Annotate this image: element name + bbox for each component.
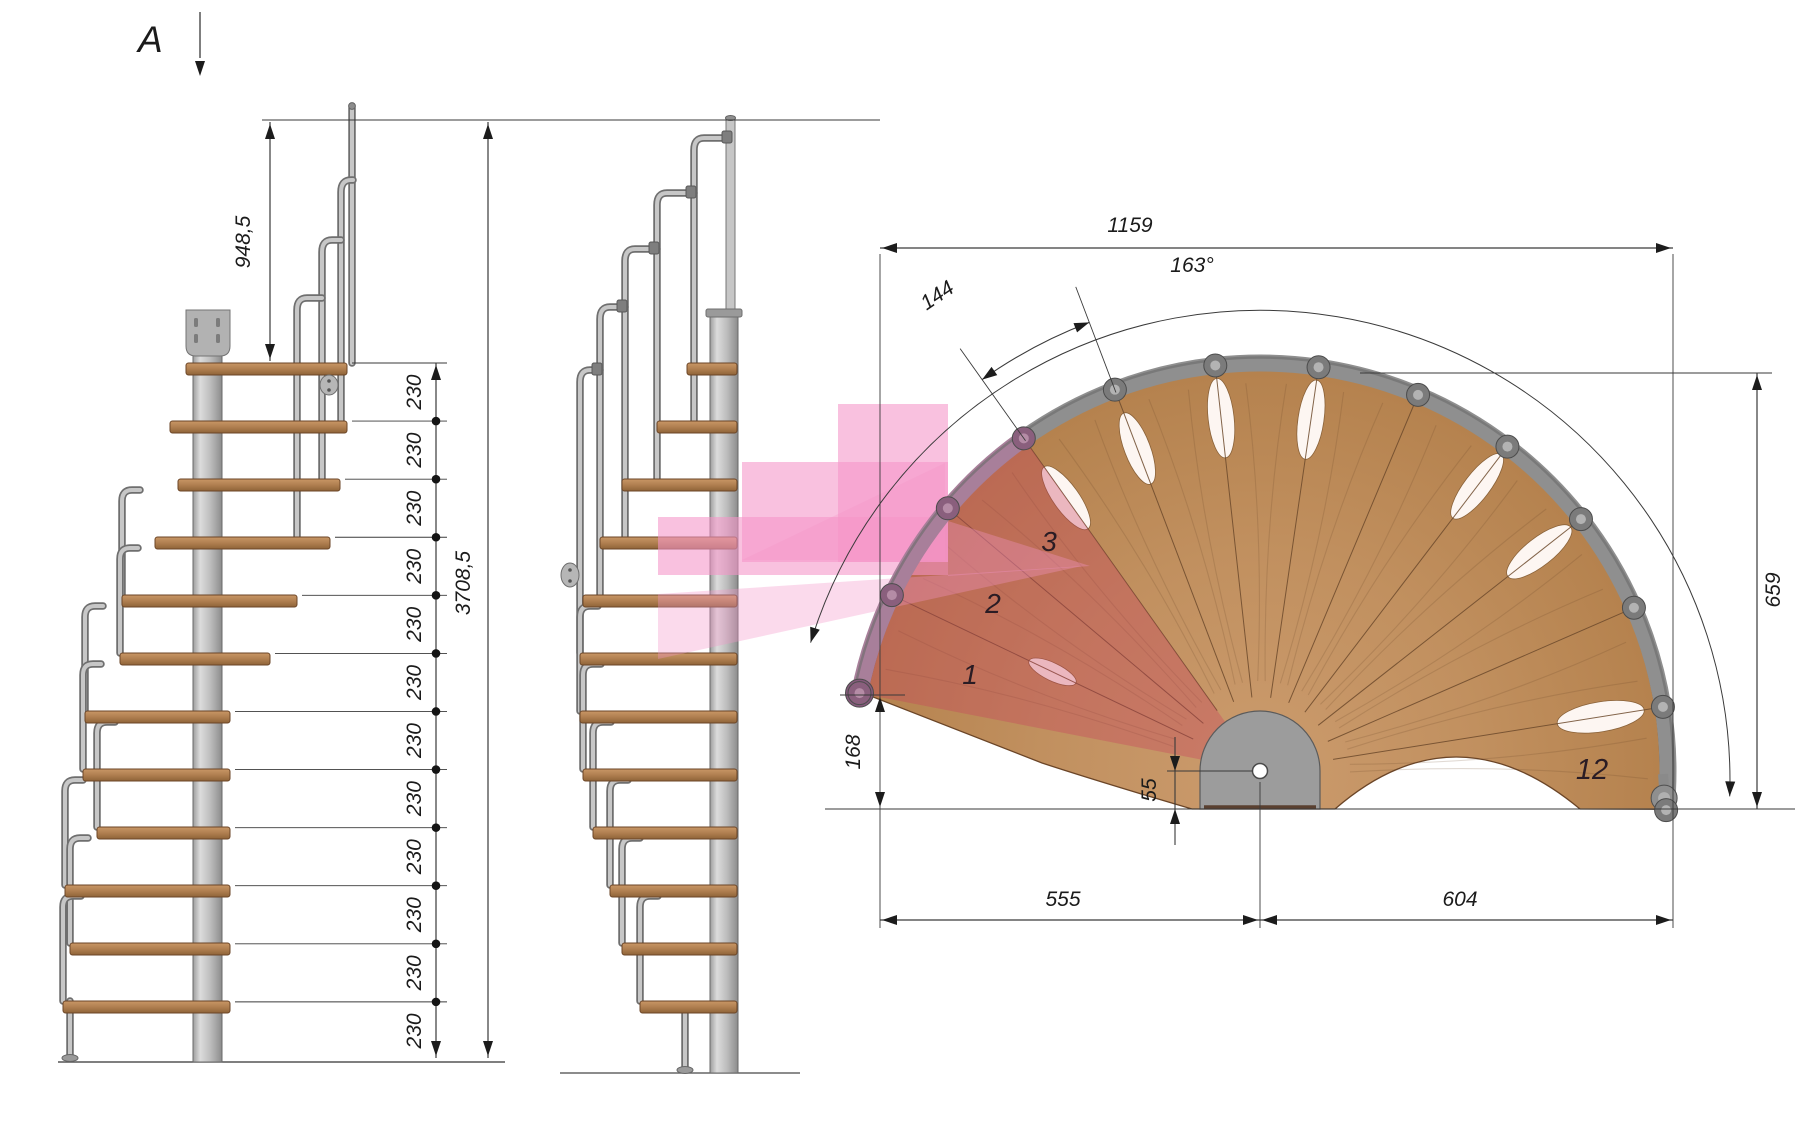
- dim-label-total-height: 3708,5: [452, 551, 475, 616]
- dim-label-left-of-center: 555: [1045, 888, 1080, 911]
- plan-step-label-3: 3: [1041, 526, 1057, 557]
- dim-label-riser-7: 230: [403, 723, 426, 759]
- dim-label-total-width: 1159: [1107, 214, 1152, 237]
- dim-label-step-arc-length: 144: [916, 276, 958, 315]
- dim-label-riser-4: 230: [403, 548, 426, 584]
- plan-view: [658, 354, 1678, 822]
- dim-label-riser-11: 230: [403, 955, 426, 991]
- plan-step-label-1: 1: [962, 659, 978, 690]
- dim-label-riser-9: 230: [403, 839, 426, 875]
- section-marker-label: A: [136, 19, 163, 60]
- dim-label-riser-6: 230: [403, 665, 426, 701]
- dim-label-riser-2: 230: [403, 432, 426, 468]
- dim-label-handrail-height: 948,5: [232, 215, 255, 268]
- dim-label-outer-height: 659: [1762, 572, 1785, 607]
- dim-label-riser-8: 230: [403, 781, 426, 817]
- technical-drawing: 230230230230230230230230230230230230 A 9…: [0, 0, 1800, 1122]
- dim-label-riser-1: 230: [403, 374, 426, 410]
- dim-label-right-of-center: 604: [1442, 888, 1477, 911]
- dim-label-total-angle: 163°: [1170, 254, 1213, 277]
- dim-label-riser-5: 230: [403, 607, 426, 643]
- dim-label-riser-10: 230: [403, 897, 426, 933]
- dim-label-center-offset: 55: [1138, 778, 1161, 802]
- dim-label-riser-3: 230: [403, 490, 426, 526]
- dim-label-first-step-rise: 168: [842, 734, 865, 769]
- drawing-sheet: 230230230230230230230230230230230230 A 9…: [0, 0, 1800, 1122]
- plan-step-label-12: 12: [1576, 754, 1608, 786]
- left-elevation-view: [58, 103, 505, 1062]
- dim-label-riser-12: 230: [403, 1013, 426, 1049]
- plan-step-label-2: 2: [984, 588, 1001, 619]
